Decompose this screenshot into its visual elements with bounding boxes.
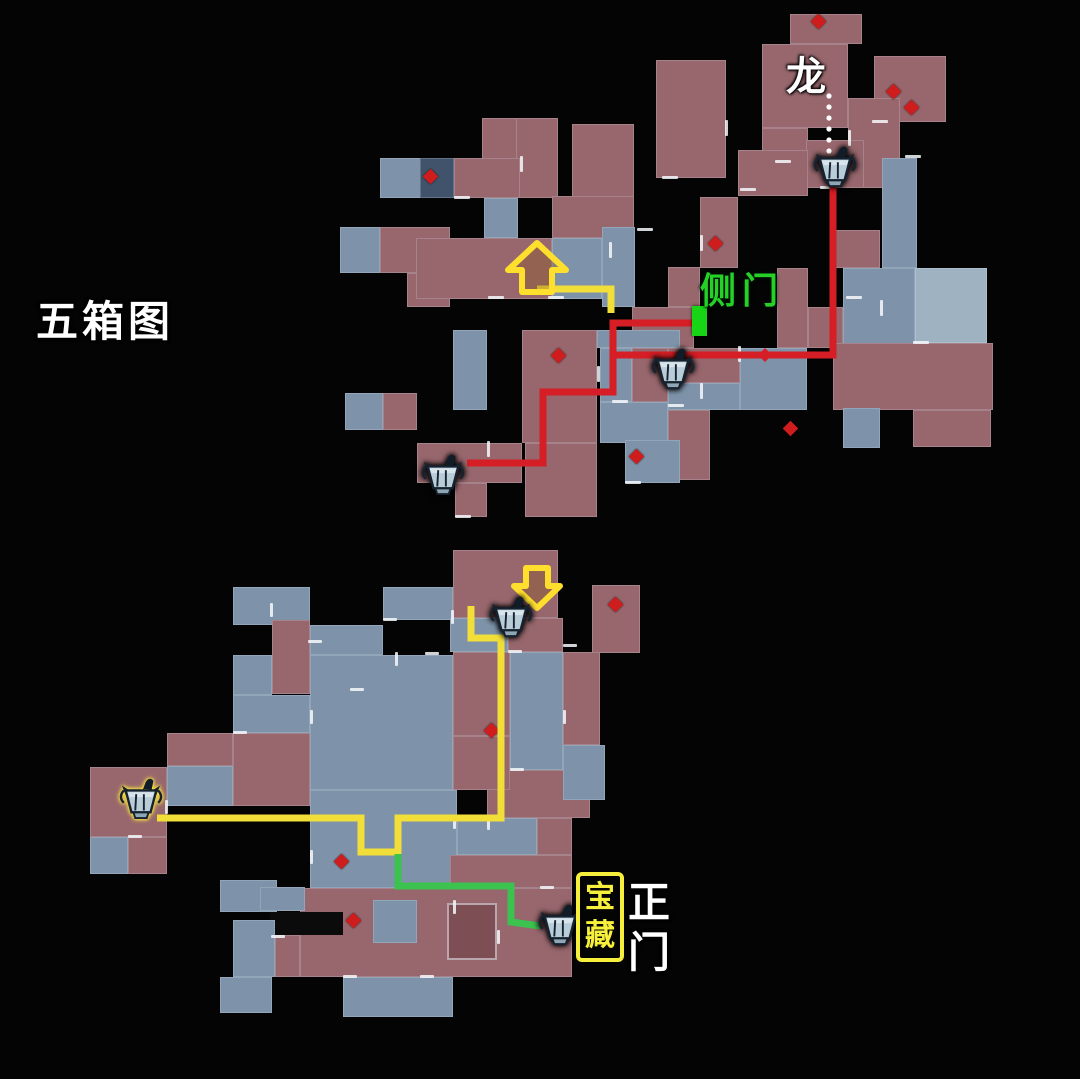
main-gate-char-2: 门 <box>628 928 670 978</box>
red-route-arrowhead <box>758 348 772 362</box>
treasure-char-1: 宝 <box>580 879 620 917</box>
dragon-dotted-path-dot <box>826 104 831 109</box>
treasure-chest-icon <box>423 455 463 494</box>
map-title: 五箱图 <box>36 288 174 349</box>
treasure-chest-icon <box>815 147 855 186</box>
dragon-dotted-path-dot <box>826 115 831 120</box>
routes-overlay <box>0 0 1080 1079</box>
treasure-char-2: 藏 <box>580 917 620 955</box>
yellow-route-bottom <box>157 606 501 852</box>
treasure-chest-icon-highlighted <box>121 779 161 818</box>
game-map-canvas: 五箱图 龙 侧门 宝 藏 正 门 <box>0 0 1080 1079</box>
treasure-chest-icon <box>491 597 531 636</box>
dragon-label: 龙 <box>786 44 826 102</box>
dragon-dotted-path-dot <box>826 126 831 131</box>
dragon-dotted-path-dot <box>826 148 831 153</box>
dragon-dotted-path-dot <box>826 93 831 98</box>
green-route <box>398 854 540 926</box>
main-gate-label: 正 门 <box>628 878 670 978</box>
dragon-dotted-path-dot <box>826 137 831 142</box>
red-route-b <box>467 355 613 463</box>
main-gate-char-1: 正 <box>628 878 670 928</box>
side-door-label: 侧门 <box>700 262 784 314</box>
up-arrow-icon <box>508 243 566 292</box>
treasure-chest-icon <box>540 905 580 944</box>
treasure-label-box: 宝 藏 <box>576 872 624 962</box>
